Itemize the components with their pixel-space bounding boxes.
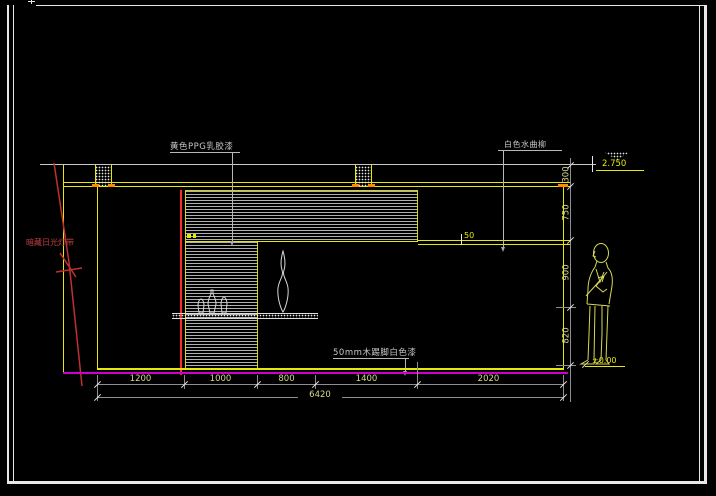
ledge-thickness-dim: 50 — [464, 231, 478, 240]
ceiling-slab-line — [40, 164, 596, 165]
human-scale-figure — [572, 242, 644, 372]
beam-corner-tick — [368, 184, 375, 187]
light-strip-leader — [20, 155, 100, 395]
frame-right-inner-line — [699, 5, 700, 482]
light-strip-line — [180, 190, 182, 375]
frame-left-outer-line — [7, 5, 9, 483]
beam-corner-tick — [108, 184, 115, 187]
ledge-finish-label: 白色水曲柳 — [504, 140, 547, 150]
elevation-top-value: 2.750 — [602, 160, 638, 169]
dim-value: 820 — [563, 321, 572, 351]
skirting-label: 50mm木踢脚白色漆 — [333, 348, 416, 358]
dim-value: 1200 — [118, 375, 163, 384]
frame-left-inner-line — [13, 5, 14, 482]
dim-extension-line — [556, 307, 576, 308]
vase-decor — [270, 250, 296, 314]
dim-value: 900 — [563, 258, 572, 288]
frame-corner-mark — [31, 0, 32, 4]
dim-value: 1400 — [344, 375, 389, 384]
wall-paint-label: 黄色PPG乳胶漆 — [170, 142, 233, 152]
feature-panel-top-band — [185, 190, 418, 242]
ledge-finish-leader-line — [503, 151, 504, 247]
beam-section-hatch — [355, 166, 372, 186]
ceiling-band-bottom-line — [63, 186, 570, 187]
floor-finish-line — [97, 368, 563, 370]
ceiling-band-top-line — [63, 182, 570, 183]
dim-total-value: 6420 — [298, 391, 342, 400]
skirting-leader-underline — [333, 358, 409, 359]
cove-symbol — [187, 234, 191, 238]
elevation-top-underline — [596, 170, 644, 171]
ledge-finish-leader-arrow — [501, 247, 505, 252]
ledge-finish-leader-underline — [498, 150, 562, 151]
beam-corner-tick — [352, 184, 359, 187]
frame-top-line — [36, 5, 706, 6]
wall-paint-leader-arrow — [230, 241, 234, 246]
cad-elevation-drawing: 2.750 50 黄色PPG乳胶漆 白色水曲 — [0, 0, 716, 496]
frame-right-outer-line — [704, 5, 707, 483]
dim-line-segments — [97, 384, 563, 385]
dim-value: 2020 — [466, 375, 511, 384]
ledge-bottom-line — [418, 244, 570, 245]
wall-paint-leader-underline — [170, 152, 240, 153]
cove-symbol — [193, 234, 196, 238]
wall-paint-leader-line — [232, 153, 233, 241]
ledge-dim-tick — [461, 234, 462, 245]
dim-value: 750 — [563, 198, 572, 228]
dim-value: 800 — [264, 375, 309, 384]
dim-value: 300 — [563, 160, 572, 190]
ledge-top-line — [418, 240, 570, 241]
dim-value: 1000 — [198, 375, 243, 384]
frame-bottom-line — [7, 481, 707, 484]
dim-extension-line — [556, 365, 576, 366]
figurines-decor — [194, 286, 234, 314]
elevation-top-tick — [592, 156, 593, 172]
